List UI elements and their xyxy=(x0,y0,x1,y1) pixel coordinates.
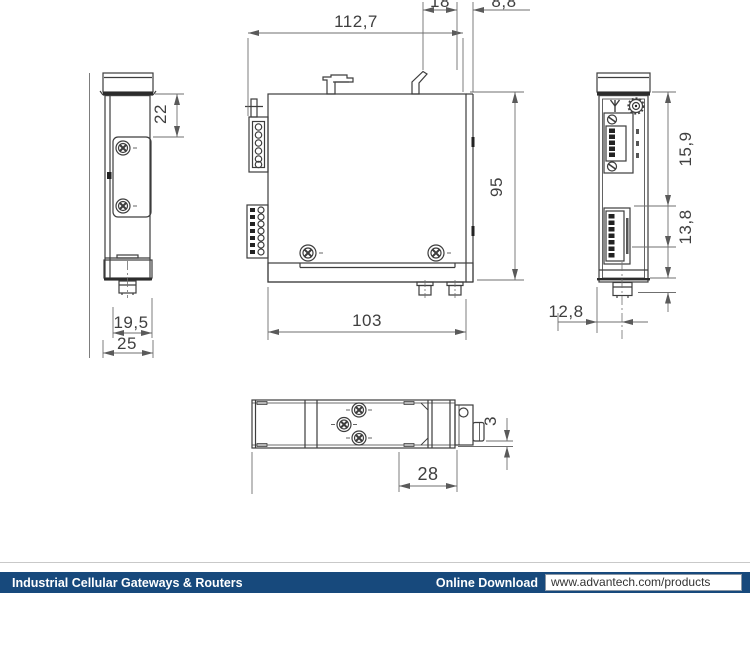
dim-front-width: 103 xyxy=(352,311,382,330)
screw-icon xyxy=(116,199,137,213)
dim-top-small-left: 18 xyxy=(430,0,450,11)
screw-icon xyxy=(346,431,372,445)
screw-icon xyxy=(428,245,451,261)
lower-terminal-block xyxy=(604,208,630,264)
dim-left-outer-width: 25 xyxy=(117,334,137,353)
right-front-view xyxy=(597,73,650,340)
dim-bottom-protrusion: 3 xyxy=(481,416,500,426)
foot-connector xyxy=(447,280,463,298)
pin-label-marks xyxy=(626,218,629,254)
dim-left-inner-width: 19,5 xyxy=(113,313,148,332)
foot-connector xyxy=(417,280,433,298)
bottom-connector xyxy=(613,283,632,299)
dim-bottom-section-width: 28 xyxy=(417,464,438,484)
terminal-connector-side xyxy=(247,205,268,258)
bottom-plate xyxy=(268,263,473,282)
device-bottom-outline xyxy=(252,400,455,448)
footer-bar: Industrial Cellular Gateways & Routers O… xyxy=(0,572,750,593)
din-clip-right xyxy=(412,72,427,95)
din-clip-left xyxy=(323,75,353,94)
led-label-marks xyxy=(636,129,639,134)
dim-right-block-top: 15,9 xyxy=(676,131,695,166)
dim-overall-width: 112,7 xyxy=(334,12,378,31)
dim-left-top-offset: 22 xyxy=(151,104,170,124)
bottom-view-dimensions xyxy=(252,418,513,494)
device-body-side xyxy=(105,96,150,280)
screw-icon xyxy=(346,403,372,417)
dimension-drawing: 22 19,5 25 xyxy=(0,0,750,562)
online-download-label: Online Download xyxy=(436,576,538,590)
upper-terminal-block xyxy=(604,113,639,173)
screw-icon xyxy=(116,141,137,155)
screw-icon xyxy=(331,418,357,432)
dim-right-foot-offset: 12,8 xyxy=(548,302,583,321)
center-view-dimensions xyxy=(248,2,530,340)
screw-icon xyxy=(300,245,323,261)
antenna-icon xyxy=(611,100,620,112)
dim-top-small-right: 8,8 xyxy=(491,0,516,11)
side-connector-bottom xyxy=(455,405,484,445)
bottom-view xyxy=(252,400,484,448)
website-url-link[interactable]: www.advantech.com/products xyxy=(545,574,742,591)
dim-front-height: 95 xyxy=(487,177,506,197)
footer-category-title: Industrial Cellular Gateways & Routers xyxy=(12,576,243,590)
center-side-view xyxy=(245,72,475,299)
din-cap xyxy=(103,73,153,92)
bottom-block xyxy=(104,260,152,278)
side-slot xyxy=(107,172,112,179)
sma-connector-icon xyxy=(628,98,644,114)
dim-right-block-bottom: 13,8 xyxy=(676,209,695,244)
footer-divider xyxy=(0,562,750,563)
